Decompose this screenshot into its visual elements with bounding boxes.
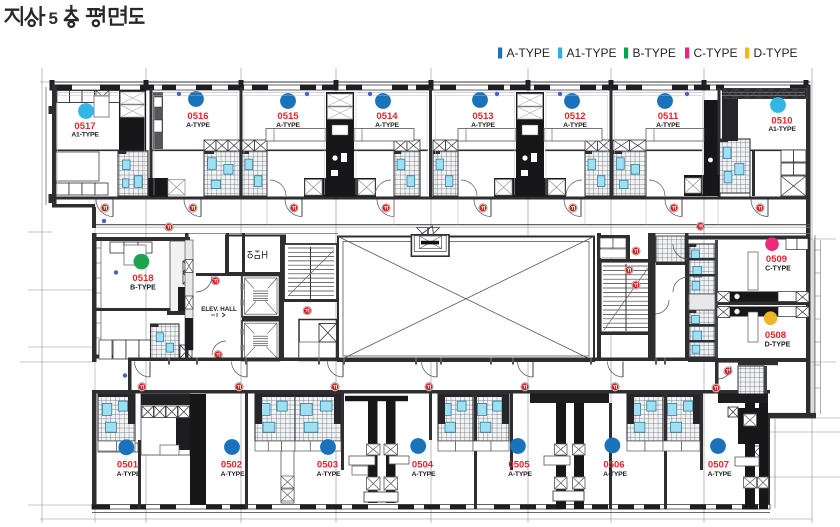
svg-text:A-TYPE: A-TYPE <box>221 471 245 478</box>
svg-text:0508: 0508 <box>765 330 786 341</box>
svg-text:A-TYPE: A-TYPE <box>507 46 550 60</box>
svg-text:0517: 0517 <box>74 121 95 132</box>
svg-text:0503: 0503 <box>317 460 338 471</box>
svg-text:0506: 0506 <box>603 460 624 471</box>
svg-text:0512: 0512 <box>564 111 585 122</box>
svg-text:A-TYPE: A-TYPE <box>117 471 141 478</box>
svg-text:A-TYPE: A-TYPE <box>471 122 495 129</box>
svg-text:A-TYPE: A-TYPE <box>276 122 300 129</box>
svg-text:ELEV. HALL: ELEV. HALL <box>201 306 237 313</box>
svg-text:0509: 0509 <box>766 254 787 265</box>
svg-text:0511: 0511 <box>658 111 679 122</box>
svg-text:A-TYPE: A-TYPE <box>563 122 587 129</box>
svg-text:A-TYPE: A-TYPE <box>412 471 436 478</box>
svg-text:A1-TYPE: A1-TYPE <box>768 126 796 133</box>
svg-text:A-TYPE: A-TYPE <box>186 122 210 129</box>
svg-text:B-TYPE: B-TYPE <box>633 46 676 60</box>
svg-text:A-TYPE: A-TYPE <box>603 471 627 478</box>
svg-text:B-TYPE: B-TYPE <box>130 285 156 292</box>
svg-text:0518: 0518 <box>132 273 153 284</box>
svg-text:0504: 0504 <box>412 460 434 471</box>
svg-text:D-TYPE: D-TYPE <box>754 46 798 60</box>
svg-text:0515: 0515 <box>277 111 299 122</box>
svg-text:0516: 0516 <box>187 111 208 122</box>
svg-text:0507: 0507 <box>708 460 729 471</box>
svg-text:A-TYPE: A-TYPE <box>708 471 732 478</box>
svg-text:A-TYPE: A-TYPE <box>656 122 680 129</box>
svg-text:A-TYPE: A-TYPE <box>317 471 341 478</box>
svg-text:A-TYPE: A-TYPE <box>375 122 399 129</box>
svg-text:D-TYPE: D-TYPE <box>765 342 791 349</box>
svg-text:0505: 0505 <box>508 460 530 471</box>
svg-text:0514: 0514 <box>376 111 398 122</box>
svg-text:C-TYPE: C-TYPE <box>765 266 791 273</box>
svg-text:0510: 0510 <box>771 116 792 127</box>
svg-text:0513: 0513 <box>472 111 493 122</box>
svg-text:A-TYPE: A-TYPE <box>508 471 532 478</box>
svg-text:5: 5 <box>49 9 58 28</box>
svg-text:A1-TYPE: A1-TYPE <box>567 46 617 60</box>
svg-text:A1-TYPE: A1-TYPE <box>71 132 99 139</box>
svg-text:C-TYPE: C-TYPE <box>694 46 738 60</box>
svg-text:0502: 0502 <box>221 460 242 471</box>
svg-text:0501: 0501 <box>117 460 139 471</box>
